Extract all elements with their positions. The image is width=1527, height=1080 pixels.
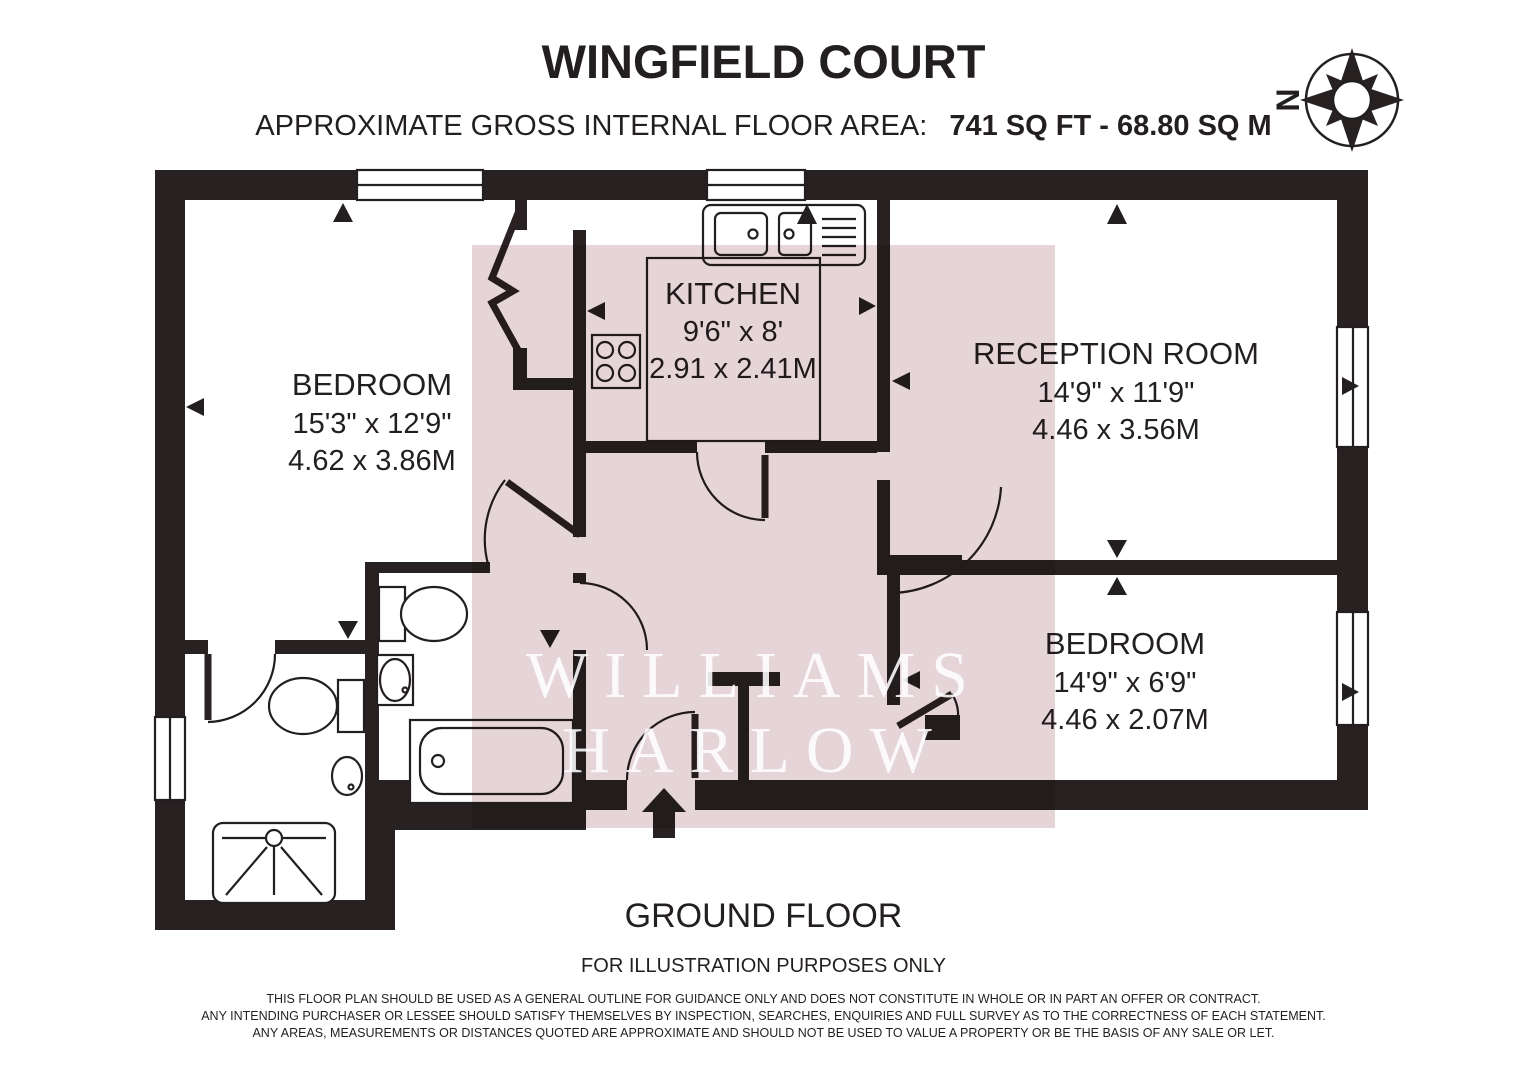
north-label: N <box>1270 88 1306 111</box>
illustration-note: FOR ILLUSTRATION PURPOSES ONLY <box>0 955 1527 978</box>
bathroom1-door-arc <box>208 654 275 722</box>
floorplan-page: WINGFIELD COURT APPROXIMATE GROSS INTERN… <box>0 0 1527 1080</box>
shower-icon <box>213 823 335 903</box>
disclaimer: THIS FLOOR PLAN SHOULD BE USED AS A GENE… <box>0 991 1527 1042</box>
toilet-icon-2 <box>379 587 467 641</box>
compass-icon: N <box>1270 48 1404 152</box>
room-label-bedroom-1: BEDROOM 15'3" x 12'9" 4.62 x 3.86M <box>288 367 456 477</box>
toilet-icon-1 <box>269 678 364 734</box>
svg-text:BEDROOM: BEDROOM <box>1045 626 1205 661</box>
svg-text:14'9" x 11'9": 14'9" x 11'9" <box>1038 377 1195 409</box>
disclaimer-line: ANY INTENDING PURCHASER OR LESSEE SHOULD… <box>0 1008 1527 1025</box>
room-label-bedroom-2: BEDROOM 14'9" x 6'9" 4.46 x 2.07M <box>1041 626 1209 736</box>
disclaimer-line: THIS FLOOR PLAN SHOULD BE USED AS A GENE… <box>0 991 1527 1008</box>
basin-icon-1 <box>332 757 362 795</box>
svg-text:4.62 x 3.86M: 4.62 x 3.86M <box>288 445 456 477</box>
ground-floor-label: GROUND FLOOR <box>0 897 1527 936</box>
svg-text:14'9" x 6'9": 14'9" x 6'9" <box>1054 667 1197 699</box>
svg-text:4.46 x 2.07M: 4.46 x 2.07M <box>1041 704 1209 736</box>
svg-text:WILLIAMS: WILLIAMS <box>526 639 984 712</box>
basin-icon-2 <box>377 655 413 705</box>
svg-text:4.46 x 3.56M: 4.46 x 3.56M <box>1032 414 1200 446</box>
svg-text:BEDROOM: BEDROOM <box>292 367 452 402</box>
disclaimer-line: ANY AREAS, MEASUREMENTS OR DISTANCES QUO… <box>0 1025 1527 1042</box>
svg-text:15'3" x 12'9": 15'3" x 12'9" <box>292 408 451 440</box>
svg-text:HARLOW: HARLOW <box>562 714 948 787</box>
